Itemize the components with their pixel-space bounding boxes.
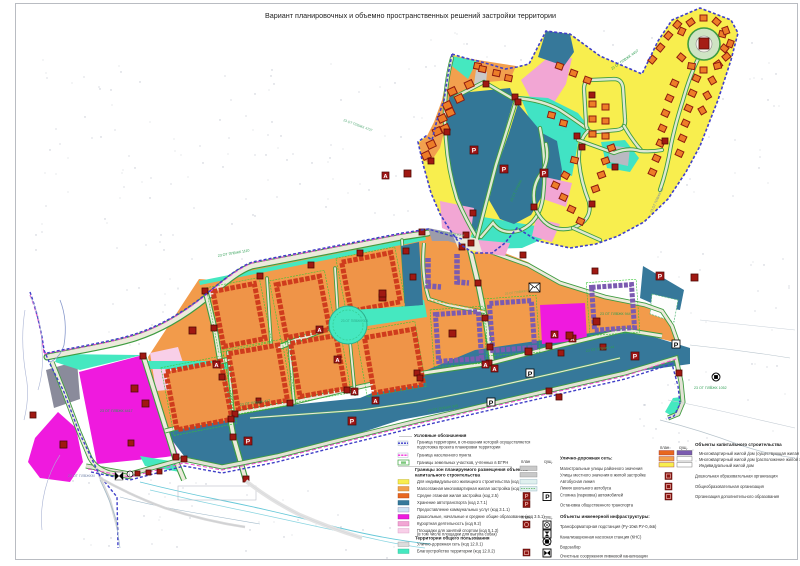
svg-text:Трансформаторная подстанция (Р: Трансформаторная подстанция (Ру-10кв РУ-…	[560, 524, 657, 529]
svg-text:Многоквартирный жилой дом (рас: Многоквартирный жилой дом (расположение …	[699, 457, 800, 462]
svg-text:P: P	[525, 502, 529, 508]
svg-text:P: P	[246, 439, 251, 446]
svg-text:Условные обозначения: Условные обозначения	[414, 432, 467, 438]
svg-text:Стоянка (парковка) автомобилей: Стоянка (парковка) автомобилей	[560, 493, 623, 498]
svg-text:P: P	[502, 167, 507, 174]
svg-text:капитального строительства: капитального строительства	[415, 473, 481, 478]
svg-text:Канализационная насосная станц: Канализационная насосная станция (КНС)	[560, 535, 642, 540]
svg-text:Предоставление коммунальных ус: Предоставление коммунальных услуг (код 3…	[417, 507, 510, 512]
svg-text:Территории общего пользования: Территории общего пользования	[415, 535, 490, 541]
svg-text:сущ.: сущ.	[544, 459, 553, 464]
svg-text:i: i	[129, 472, 130, 477]
svg-text:Очистные сооружения ливневой к: Очистные сооружения ливневой канализации	[560, 554, 648, 559]
svg-text:Улично-дорожная сеть:: Улично-дорожная сеть:	[560, 456, 613, 461]
svg-text:P: P	[528, 371, 533, 378]
svg-text:сущ.: сущ.	[679, 445, 688, 450]
svg-text:23 ОТ ПЛВЖК 4417: 23 ОТ ПЛВЖК 4417	[100, 409, 133, 413]
svg-text:Водозабор: Водозабор	[560, 545, 581, 550]
svg-text:план: план	[660, 445, 669, 450]
svg-text:Граница населенного пункта: Граница населенного пункта	[417, 453, 472, 458]
svg-text:Объекты инженерной инфраструкт: Объекты инженерной инфраструктуры:	[560, 513, 650, 519]
svg-text:23 ОТ ПЛВЖКМ: 23 ОТ ПЛВЖКМ	[68, 474, 95, 478]
svg-text:P: P	[350, 419, 355, 426]
svg-text:23 ОТ ПЛВЖК 1052: 23 ОТ ПЛВЖК 1052	[694, 386, 727, 390]
svg-text:P: P	[633, 354, 638, 361]
svg-text:23 ОТ ПЛВЖК 944: 23 ОТ ПЛВЖК 944	[600, 312, 631, 316]
svg-text:P: P	[545, 494, 550, 501]
svg-text:Объекты капитального строитель: Объекты капитального строительства	[695, 441, 782, 447]
svg-text:Остановка общественного трансп: Остановка общественного транспорта	[560, 503, 634, 508]
svg-text:Средне этажная жилая застройка: Средне этажная жилая застройка (код 2.5)	[417, 493, 499, 498]
svg-text:Улицы местного значения в жило: Улицы местного значения в жилой застройк…	[560, 473, 647, 478]
svg-text:P: P	[542, 171, 547, 178]
svg-text:P: P	[658, 274, 663, 281]
svg-text:Благоустройство территории (ко: Благоустройство территории (код 12.0.2)	[417, 549, 496, 554]
svg-text:Индивидуальный жилой дом: Индивидуальный жилой дом	[699, 463, 754, 468]
svg-text:Для индивидуального жилищного: Для индивидуального жилищного строительс…	[417, 479, 527, 484]
svg-text:Магистральные улицы районного: Магистральные улицы районного значения	[560, 466, 642, 471]
svg-text:Вариант планировочных и объемн: Вариант планировочных и объемно простран…	[265, 11, 556, 20]
svg-text:Малоэтажная многоквартирная жи: Малоэтажная многоквартирная жилая застро…	[417, 486, 531, 491]
svg-text:Общеобразовательная организаци: Общеобразовательная организация	[695, 484, 764, 489]
svg-text:Границы зон планируемого разме: Границы зон планируемого размещения объе…	[415, 466, 528, 472]
svg-text:Автобусная линия: Автобусная линия	[560, 479, 595, 484]
svg-text:сущ.: сущ.	[544, 515, 553, 520]
svg-text:Курортная деятельность (код 9.: Курортная деятельность (код 9.2)	[417, 521, 482, 526]
svg-text:Улично-дорожная сеть (код 12.0: Улично-дорожная сеть (код 12.0.1)	[417, 542, 483, 547]
svg-text:P: P	[525, 494, 529, 500]
svg-text:план: план	[521, 459, 530, 464]
svg-text:Организация дополнительного об: Организация дополнительного образования	[695, 494, 779, 499]
svg-text:23 ОТ ПЛВЖК 304: 23 ОТ ПЛВЖК 304	[341, 319, 368, 323]
svg-text:Линия школьного автобуса: Линия школьного автобуса	[560, 486, 612, 491]
svg-text:P: P	[472, 148, 477, 155]
svg-text:Хранение автотранспорта (код: Хранение автотранспорта (код 2.7.1)	[417, 500, 488, 505]
svg-text:P: P	[674, 342, 679, 349]
svg-text:P: P	[489, 400, 494, 407]
svg-text:Границы земельных участков, уч: Границы земельных участков, учтенных в Е…	[417, 460, 508, 465]
svg-text:Многоквартирный жилой дом (сущ: Многоквартирный жилой дом (существующая …	[699, 451, 800, 456]
svg-text:план: план	[521, 515, 530, 520]
svg-text:Дошкольная образовательная орг: Дошкольная образовательная организация	[695, 474, 778, 479]
svg-text:подготовка проекта планировки: подготовка проекта планировки территории	[417, 445, 500, 450]
